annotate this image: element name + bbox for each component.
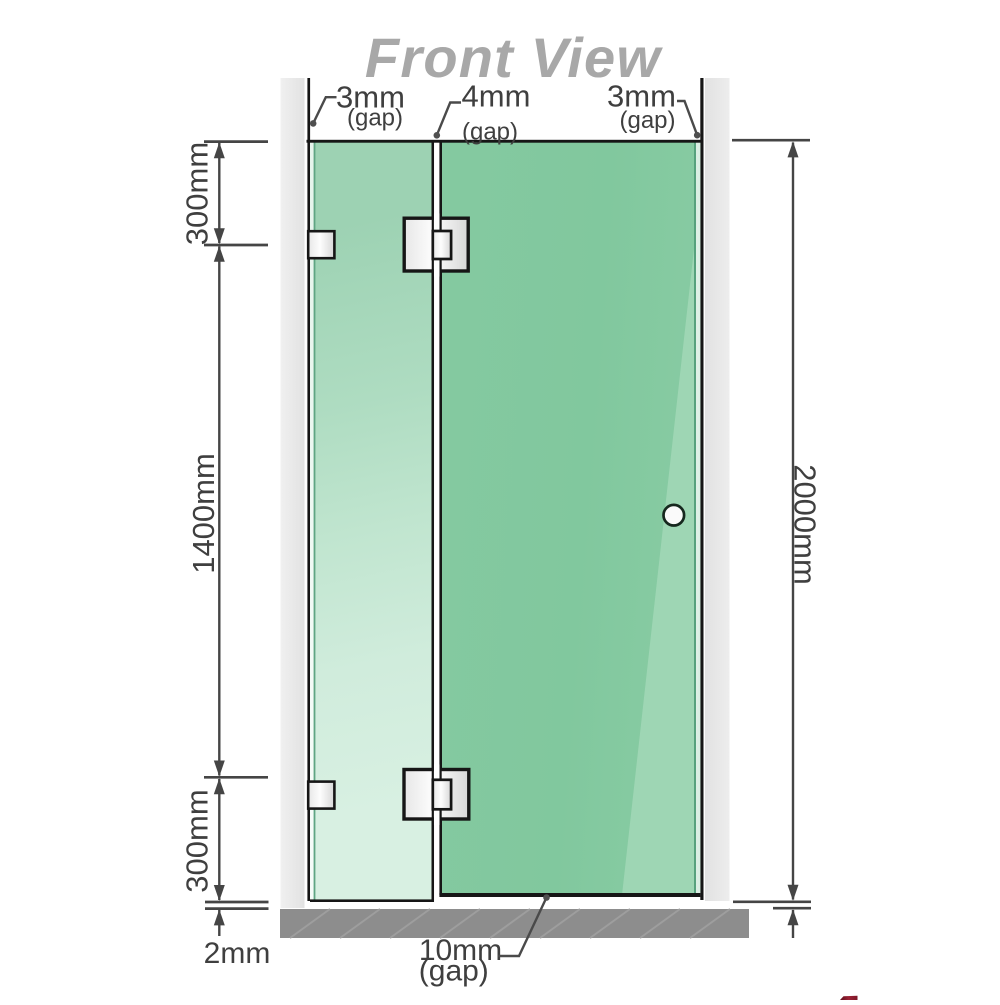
svg-text:(gap): (gap) [347, 105, 403, 132]
svg-text:2000mm: 2000mm [788, 464, 823, 585]
svg-text:2mm: 2mm [204, 937, 271, 970]
svg-text:4mm: 4mm [462, 79, 531, 114]
svg-text:1400mm: 1400mm [186, 453, 221, 574]
svg-text:300mm: 300mm [180, 789, 215, 892]
svg-text:(gap): (gap) [619, 107, 675, 134]
svg-text:300mm: 300mm [180, 142, 215, 245]
svg-text:(gap): (gap) [419, 955, 489, 988]
svg-text:(gap): (gap) [462, 119, 518, 146]
